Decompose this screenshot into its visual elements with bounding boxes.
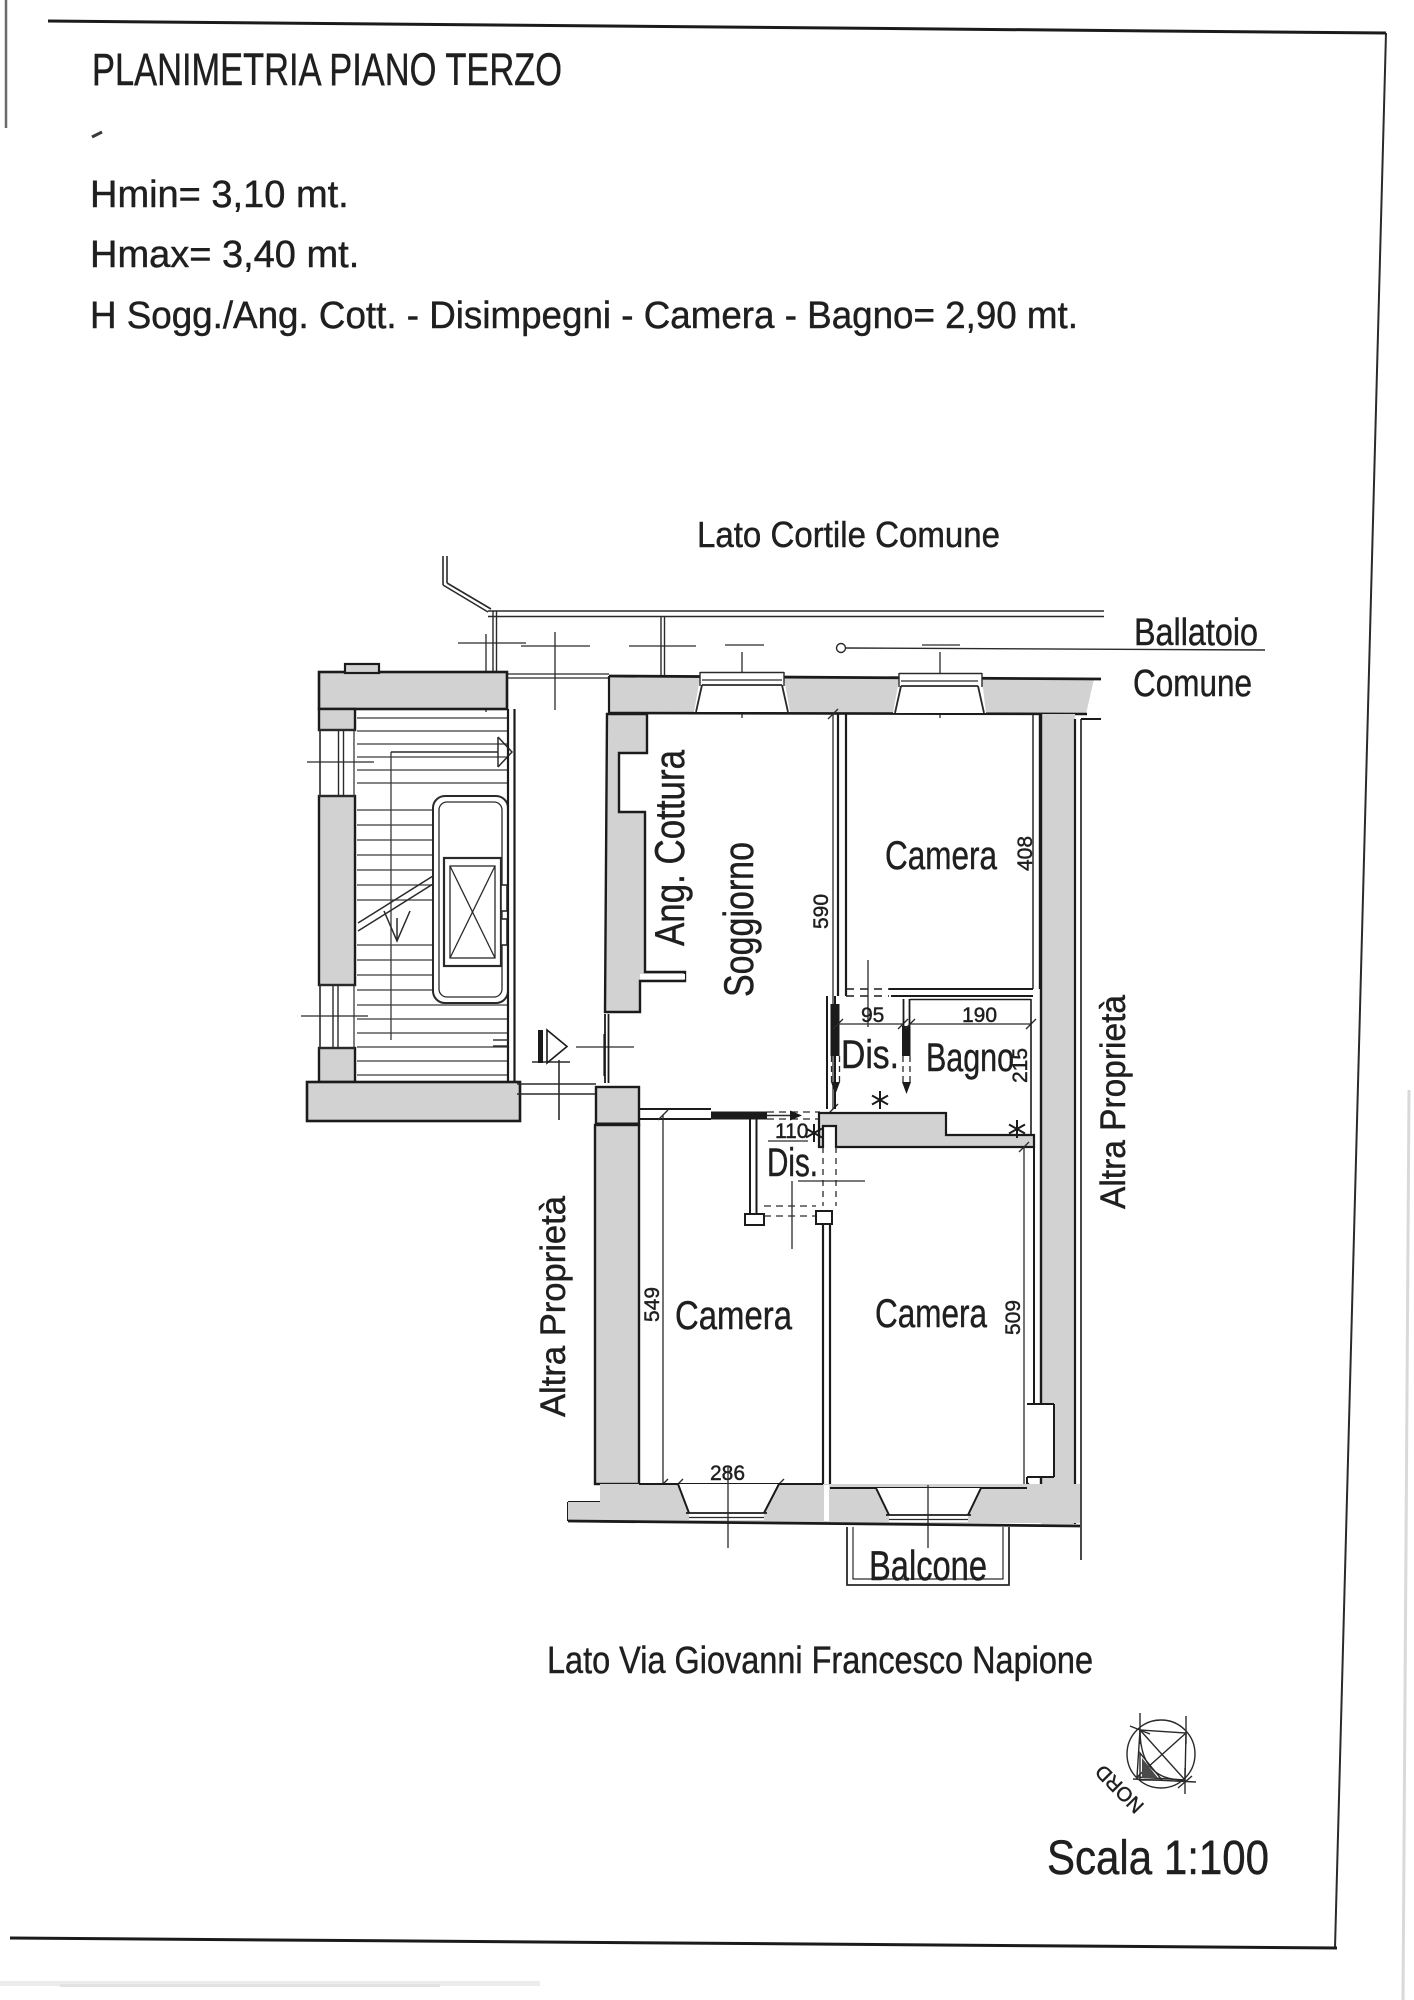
svg-text:95: 95 bbox=[861, 1004, 884, 1027]
svg-text:Scala 1:100: Scala 1:100 bbox=[1047, 1832, 1269, 1885]
svg-text:Hmax= 3,40 mt.: Hmax= 3,40 mt. bbox=[90, 234, 359, 276]
svg-text:215: 215 bbox=[1009, 1048, 1032, 1083]
svg-text:Camera: Camera bbox=[675, 1294, 793, 1338]
svg-text:H Sogg./Ang. Cott. - Disimpegn: H Sogg./Ang. Cott. - Disimpegni - Camera… bbox=[90, 295, 1078, 337]
svg-text:Altra Proprietà: Altra Proprietà bbox=[534, 1195, 573, 1417]
svg-text:Bagno: Bagno bbox=[926, 1036, 1014, 1080]
svg-text:Lato Cortile Comune: Lato Cortile Comune bbox=[697, 514, 1000, 555]
svg-text:Balcone: Balcone bbox=[869, 1542, 987, 1589]
svg-text:509: 509 bbox=[1002, 1300, 1025, 1335]
svg-text:Soggiorno: Soggiorno bbox=[715, 842, 762, 997]
svg-text:Hmin= 3,10 mt.: Hmin= 3,10 mt. bbox=[90, 174, 349, 216]
svg-text:110: 110 bbox=[775, 1120, 808, 1143]
svg-text:PLANIMETRIA PIANO TERZO: PLANIMETRIA PIANO TERZO bbox=[92, 44, 562, 95]
svg-text:Camera: Camera bbox=[885, 834, 998, 878]
svg-text:Comune: Comune bbox=[1133, 663, 1252, 705]
svg-text:590: 590 bbox=[810, 894, 833, 929]
svg-text:Dis.: Dis. bbox=[767, 1141, 818, 1185]
svg-text:Dis.: Dis. bbox=[841, 1033, 899, 1077]
svg-text:Ballatoio: Ballatoio bbox=[1134, 612, 1258, 654]
svg-text:549: 549 bbox=[641, 1287, 664, 1322]
svg-text:190: 190 bbox=[962, 1004, 997, 1027]
svg-text:Lato Via Giovanni Francesco Na: Lato Via Giovanni Francesco Napione bbox=[547, 1640, 1093, 1682]
svg-text:Ang. Cottura: Ang. Cottura bbox=[646, 749, 693, 946]
svg-text:Altra Proprietà: Altra Proprietà bbox=[1094, 995, 1133, 1209]
svg-text:Camera: Camera bbox=[875, 1292, 988, 1336]
